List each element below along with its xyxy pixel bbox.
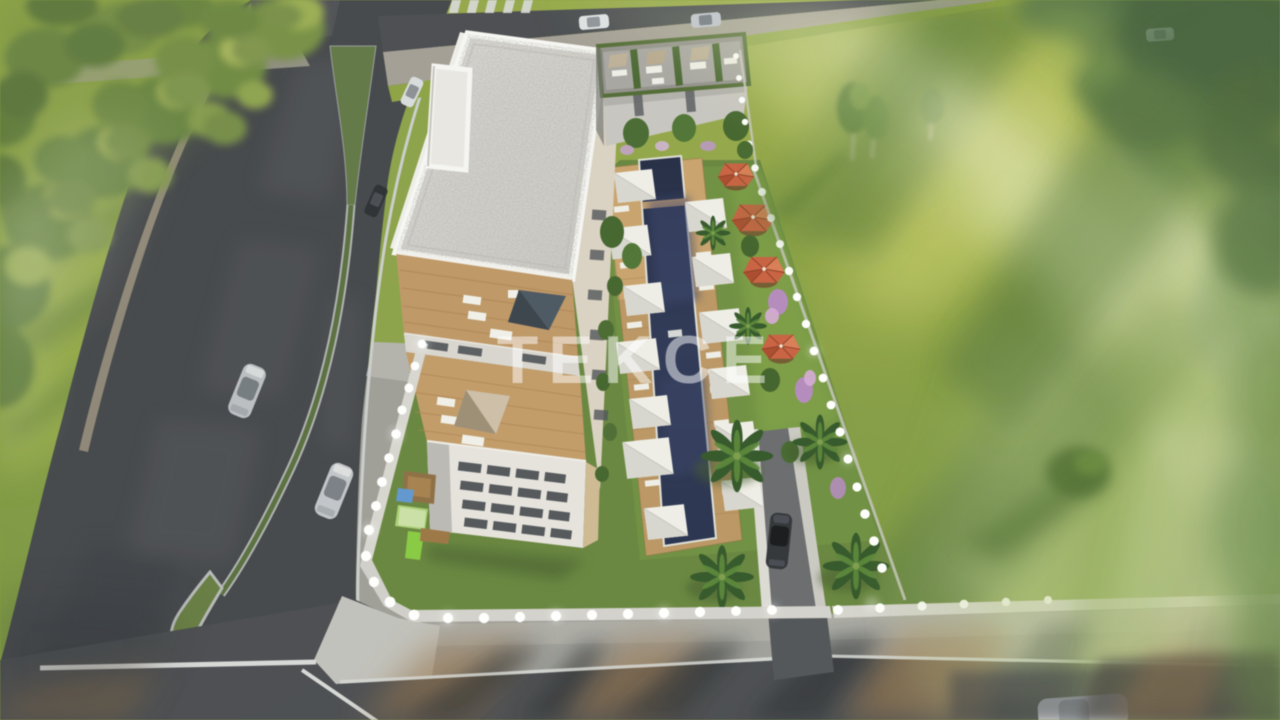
svg-text:TEKCE: TEKCE [497,322,777,398]
